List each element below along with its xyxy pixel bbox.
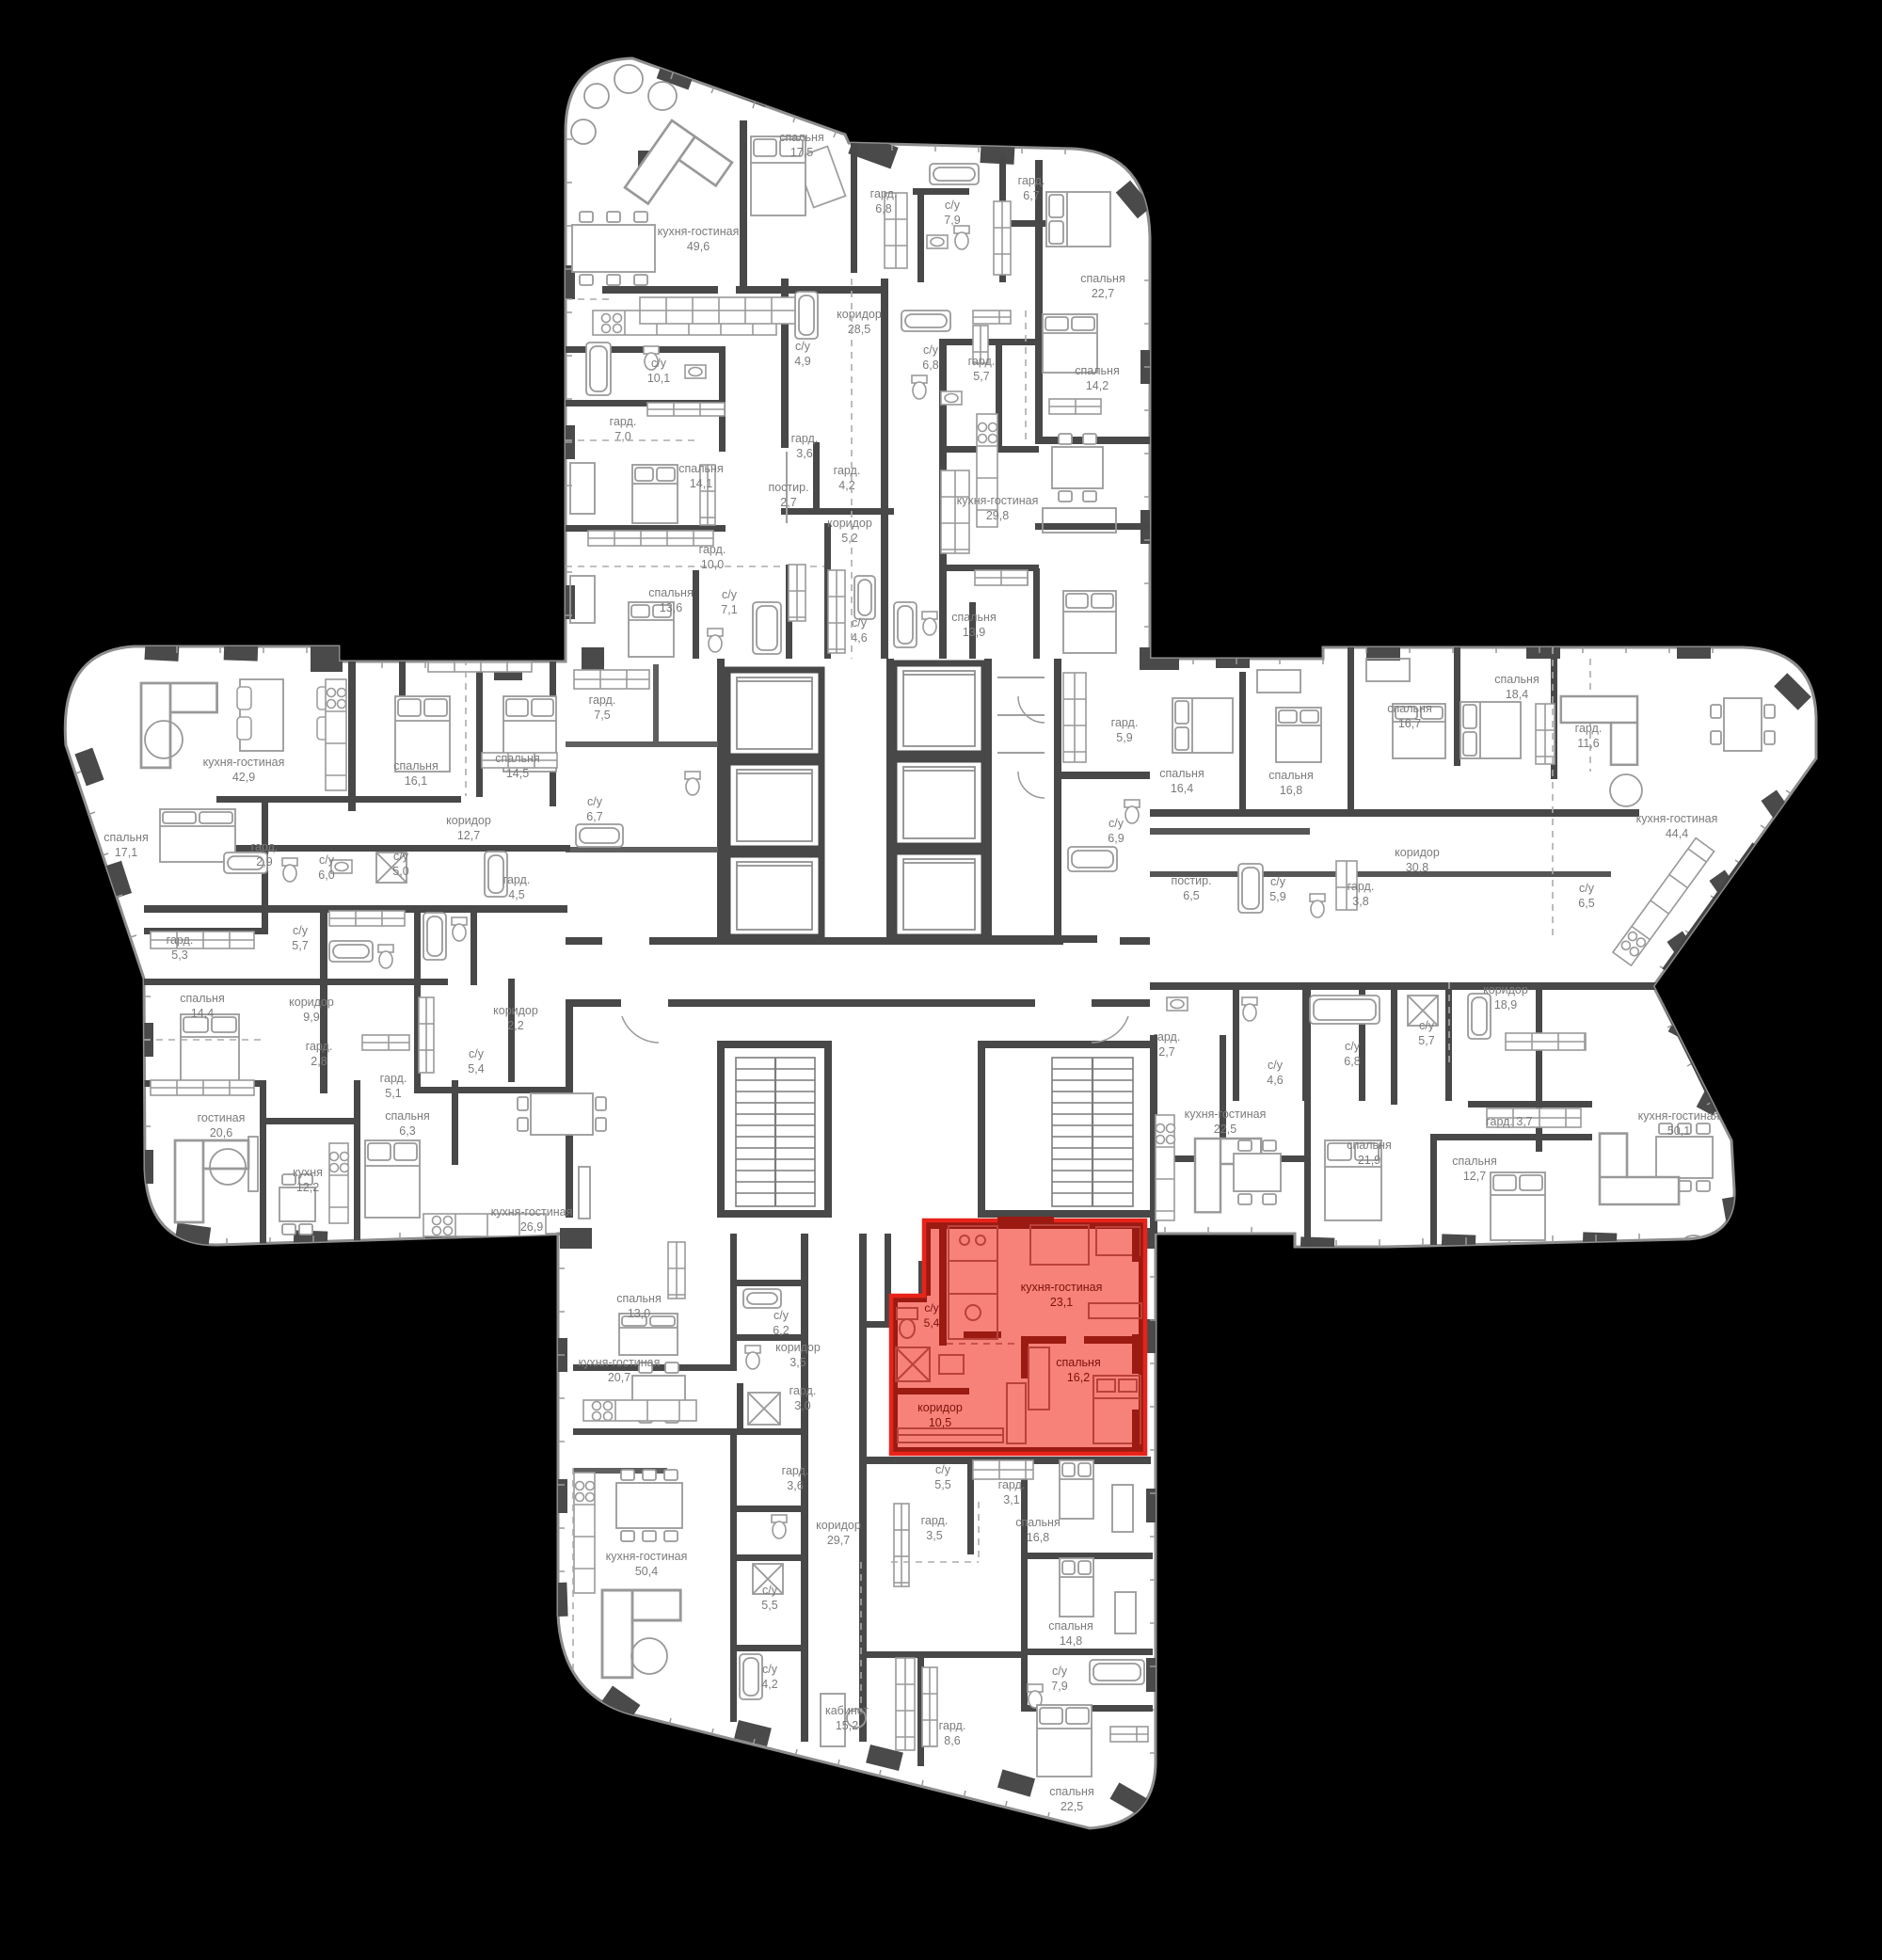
svg-text:23,1: 23,1 [1050,1296,1073,1309]
svg-text:кухня-гостиная: кухня-гостиная [1638,1109,1720,1123]
svg-text:13,6: 13,6 [660,601,682,614]
svg-text:11,6: 11,6 [1577,737,1599,750]
svg-text:8,6: 8,6 [944,1734,960,1747]
svg-text:спальня: спальня [1075,364,1119,377]
svg-text:21,9: 21,9 [1358,1154,1380,1167]
svg-text:с/у: с/у [651,357,667,370]
svg-text:5,0: 5,0 [392,865,408,878]
svg-text:12,7: 12,7 [1463,1170,1486,1183]
svg-text:10,1: 10,1 [647,372,670,385]
svg-text:коридор: коридор [816,1519,861,1532]
svg-text:гард. 3,7: гард. 3,7 [1486,1115,1533,1128]
svg-text:10,0: 10,0 [701,558,724,571]
svg-text:с/у: с/у [1052,1665,1068,1678]
svg-text:кухня-гостиная: кухня-гостиная [658,225,740,238]
svg-text:3,6: 3,6 [787,1479,803,1492]
svg-text:6,2: 6,2 [773,1324,789,1337]
svg-text:4,2: 4,2 [838,479,854,492]
svg-text:17,1: 17,1 [115,846,137,859]
svg-text:20,6: 20,6 [210,1126,232,1139]
svg-text:с/у: с/у [852,616,868,629]
svg-text:гард.: гард. [380,1072,407,1085]
svg-text:коридор: коридор [446,814,491,827]
svg-text:7,9: 7,9 [1051,1680,1067,1693]
svg-text:6,8: 6,8 [875,202,891,215]
svg-text:16,8: 16,8 [1027,1531,1049,1544]
svg-text:44,4: 44,4 [1666,827,1688,840]
svg-text:с/у: с/у [1268,1059,1284,1072]
svg-text:3,0: 3,0 [794,1399,810,1412]
svg-text:кухня-гостиная: кухня-гостиная [1021,1281,1103,1294]
svg-text:3,1: 3,1 [1003,1493,1019,1506]
svg-text:с/у: с/у [319,853,335,867]
svg-text:30,8: 30,8 [1406,861,1428,874]
svg-text:16,4: 16,4 [1171,782,1193,795]
svg-text:18,4: 18,4 [1506,688,1528,701]
svg-text:с/у: с/у [935,1463,951,1476]
svg-text:18,9: 18,9 [1494,998,1517,1012]
svg-text:гард.: гард. [834,464,861,477]
svg-text:12,7: 12,7 [457,829,480,842]
svg-text:13,9: 13,9 [963,626,985,639]
svg-text:спальня: спальня [779,131,823,144]
svg-text:20,7: 20,7 [608,1371,630,1384]
svg-text:с/у: с/у [1579,882,1595,895]
svg-text:с/у: с/у [1419,1019,1435,1032]
svg-text:3,5: 3,5 [789,1356,805,1369]
svg-text:2,8: 2,8 [311,1055,327,1068]
svg-text:с/у: с/у [924,1301,938,1315]
svg-text:50,4: 50,4 [635,1565,658,1578]
svg-text:4,5: 4,5 [508,888,524,901]
svg-text:спальня: спальня [104,831,148,844]
svg-text:коридор: коридор [837,308,882,321]
svg-text:50,1: 50,1 [1667,1124,1690,1138]
svg-text:гард.: гард. [968,355,996,368]
svg-text:с/у: с/у [945,199,961,212]
svg-text:гостиная: гостиная [198,1111,246,1124]
svg-text:6,7: 6,7 [586,810,602,823]
svg-text:5,5: 5,5 [761,1599,777,1612]
svg-text:спальня: спальня [180,992,224,1005]
svg-text:спальня: спальня [1049,1785,1093,1798]
svg-text:спальня: спальня [1387,702,1431,715]
svg-text:3,6: 3,6 [796,447,812,460]
svg-text:5,3: 5,3 [171,948,187,962]
svg-text:кабинет: кабинет [825,1704,869,1717]
svg-text:22,5: 22,5 [1061,1800,1083,1813]
svg-text:6,5: 6,5 [1183,889,1199,902]
svg-text:14,2: 14,2 [1086,379,1108,392]
svg-text:6,7: 6,7 [1023,189,1039,202]
svg-text:6,0: 6,0 [318,868,334,882]
svg-text:с/у: с/у [762,1584,778,1597]
svg-text:3,8: 3,8 [1352,895,1368,908]
svg-text:спальня: спальня [951,611,996,624]
svg-text:4,6: 4,6 [1267,1074,1283,1087]
svg-text:5,7: 5,7 [292,939,308,952]
svg-text:14,4: 14,4 [191,1007,214,1020]
svg-text:22,5: 22,5 [1214,1123,1236,1136]
svg-text:с/у: с/у [762,1663,778,1676]
svg-text:49,6: 49,6 [687,240,710,253]
svg-text:кухня-гостиная: кухня-гостиная [203,756,285,769]
svg-text:коридор: коридор [917,1401,963,1414]
svg-text:гард.: гард. [791,432,819,445]
svg-text:10,5: 10,5 [929,1416,951,1429]
svg-text:спальня: спальня [1268,769,1313,782]
svg-text:4,6: 4,6 [851,631,867,645]
svg-text:спальня: спальня [1015,1516,1060,1529]
svg-text:2,2: 2,2 [507,1019,523,1032]
svg-text:спальня: спальня [1347,1139,1391,1152]
svg-text:гард.: гард. [939,1719,966,1732]
svg-text:коридор: коридор [775,1341,821,1354]
svg-text:12,2: 12,2 [296,1181,319,1194]
svg-text:гард.: гард. [306,1040,333,1053]
svg-text:16,1: 16,1 [405,774,427,788]
svg-text:гард.: гард. [503,873,531,886]
svg-text:16,7: 16,7 [1398,717,1421,730]
svg-text:16,8: 16,8 [1280,784,1302,797]
svg-text:с/у: с/у [469,1047,485,1060]
svg-text:гард.: гард. [1018,174,1045,187]
svg-text:гард.: гард. [921,1514,949,1527]
svg-text:кухня-гостиная: кухня-гостиная [579,1356,661,1369]
svg-text:с/у: с/у [795,340,811,353]
svg-text:7,0: 7,0 [614,430,630,443]
svg-text:спальня: спальня [1494,673,1539,686]
svg-text:спальня: спальня [678,462,723,475]
svg-text:2,7: 2,7 [780,496,796,509]
svg-text:7,1: 7,1 [721,603,737,616]
svg-text:спальня: спальня [1159,767,1204,780]
svg-text:4,9: 4,9 [794,355,810,368]
svg-text:5,4: 5,4 [924,1316,940,1330]
svg-text:спальня: спальня [1056,1356,1100,1369]
svg-text:кухня-гостиная: кухня-гостиная [491,1205,573,1219]
svg-text:гард.: гард. [610,415,637,428]
svg-text:гард.: гард. [1575,722,1603,735]
svg-text:15,2: 15,2 [836,1719,858,1732]
svg-text:гард.: гард. [1111,716,1139,729]
svg-text:22,7: 22,7 [1092,287,1114,300]
svg-text:29,7: 29,7 [827,1534,850,1547]
svg-text:7,9: 7,9 [944,214,960,227]
svg-text:17,5: 17,5 [790,146,813,159]
svg-text:5,4: 5,4 [468,1062,484,1076]
svg-text:с/у: с/у [393,850,409,863]
svg-text:3,5: 3,5 [926,1529,942,1542]
svg-text:с/у: с/у [1345,1040,1361,1053]
svg-text:гард.: гард. [699,543,726,556]
svg-text:постир.: постир. [768,481,808,494]
svg-text:коридор: коридор [827,517,872,530]
svg-text:14,1: 14,1 [690,477,712,490]
svg-text:6,5: 6,5 [1578,897,1594,910]
svg-text:26,9: 26,9 [520,1220,543,1234]
svg-text:6,3: 6,3 [399,1124,415,1138]
svg-text:5,7: 5,7 [1418,1034,1434,1047]
svg-text:2,7: 2,7 [1158,1045,1174,1059]
svg-text:спальня: спальня [1048,1619,1093,1633]
svg-text:42,9: 42,9 [232,771,255,784]
svg-text:4,2: 4,2 [761,1678,777,1691]
svg-text:с/у: с/у [587,795,603,808]
svg-text:коридор: коридор [1483,983,1528,996]
svg-text:16,2: 16,2 [1067,1371,1090,1384]
svg-text:кухня-гостиная: кухня-гостиная [1185,1107,1267,1121]
svg-text:кухня: кухня [293,1166,323,1179]
svg-text:гард.: гард. [589,693,616,707]
svg-text:гард.: гард. [998,1478,1026,1491]
svg-text:спальня: спальня [495,752,539,765]
svg-text:коридор: коридор [493,1004,538,1017]
svg-text:гард.: гард. [870,187,898,200]
svg-text:7,5: 7,5 [594,709,610,722]
svg-text:спальня: спальня [393,759,438,773]
svg-text:с/у: с/у [722,588,738,601]
svg-text:кухня-гостиная: кухня-гостиная [1636,812,1718,825]
svg-text:с/у: с/у [1108,817,1124,830]
svg-text:5,5: 5,5 [934,1478,950,1491]
svg-text:спальня: спальня [1080,272,1124,285]
svg-text:коридор: коридор [1395,846,1440,859]
svg-text:5,9: 5,9 [1116,731,1132,744]
svg-text:кухня-гостиная: кухня-гостиная [606,1550,688,1563]
svg-text:5,9: 5,9 [1269,890,1285,903]
svg-text:14,8: 14,8 [1060,1634,1082,1648]
svg-text:кухня-гостиная: кухня-гостиная [957,494,1039,507]
svg-text:13,0: 13,0 [628,1307,650,1320]
svg-text:5,2: 5,2 [841,532,857,545]
svg-text:6,8: 6,8 [922,359,938,372]
svg-text:с/у: с/у [923,343,939,357]
svg-text:спальня: спальня [616,1292,661,1305]
svg-text:гард.: гард. [789,1384,817,1397]
svg-text:с/у: с/у [293,924,309,937]
svg-text:спальня: спальня [648,586,693,599]
svg-text:гард.: гард. [167,933,194,947]
svg-text:14,5: 14,5 [506,767,529,780]
svg-text:гард.: гард. [782,1464,809,1477]
svg-text:5,7: 5,7 [973,370,989,383]
svg-text:гард.: гард. [1348,880,1375,893]
svg-text:постир.: постир. [1171,874,1211,887]
svg-text:спальня: спальня [385,1109,429,1123]
svg-text:гард.: гард. [251,840,279,853]
svg-text:с/у: с/у [1270,875,1286,888]
svg-text:с/у: с/у [774,1309,789,1322]
svg-text:6,9: 6,9 [1108,832,1124,845]
svg-text:5,1: 5,1 [385,1087,401,1100]
svg-text:29,8: 29,8 [986,509,1009,522]
svg-text:коридор: коридор [289,996,334,1009]
svg-text:2,9: 2,9 [256,855,272,868]
svg-text:спальня: спальня [1452,1155,1496,1168]
svg-text:9,9: 9,9 [303,1011,319,1024]
svg-text:6,8: 6,8 [1344,1055,1360,1068]
